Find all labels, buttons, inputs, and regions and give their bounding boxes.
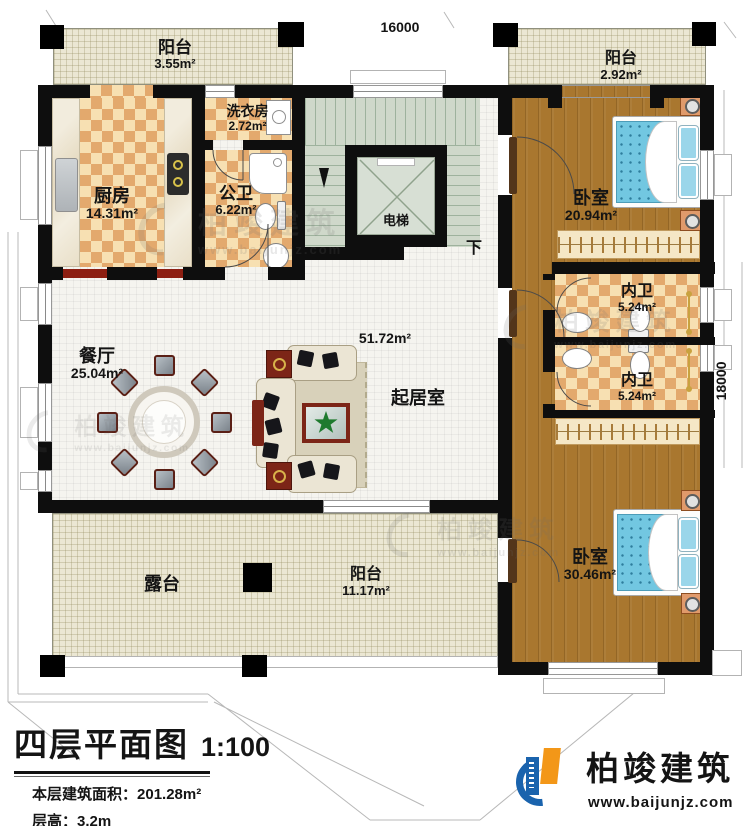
wall xyxy=(498,338,512,538)
window xyxy=(353,85,443,98)
dimension-text: 18000 xyxy=(713,361,729,400)
column xyxy=(40,655,65,677)
floor-area-value: 201.28m² xyxy=(137,786,201,803)
room-label-bedroom-top: 卧室 20.94m² xyxy=(543,188,639,224)
room-area: 14.31m² xyxy=(62,206,162,222)
room-name: 洗衣房 xyxy=(205,104,290,120)
window xyxy=(700,150,714,200)
room-label-kitchen: 厨房 14.31m² xyxy=(62,186,162,222)
room-name: 阳台 xyxy=(320,566,412,584)
room-area: 2.92m² xyxy=(571,68,671,83)
room-name: 露台 xyxy=(144,574,180,594)
title-underline xyxy=(14,771,210,774)
brand-building-windows xyxy=(529,762,534,788)
title-underline-thin xyxy=(14,776,210,777)
wall xyxy=(38,500,323,513)
column xyxy=(243,563,272,592)
wall xyxy=(552,262,715,274)
dimension-width: 16000 xyxy=(370,19,430,37)
stair-down-label: 下 xyxy=(462,240,486,258)
wall xyxy=(183,267,225,280)
window-sill xyxy=(350,70,446,84)
room-label-balcony-bottom: 阳台 11.17m² xyxy=(320,566,412,598)
window-sill xyxy=(20,287,38,321)
wall xyxy=(498,195,512,288)
dimension-height: 18000 xyxy=(713,355,731,407)
wall xyxy=(658,662,712,675)
room-label-ensuite-bottom: 内卫 5.24m² xyxy=(592,372,682,403)
room-area: 2.72m² xyxy=(205,120,290,133)
door-threshold xyxy=(63,269,107,278)
wall xyxy=(205,140,213,150)
room-area: 3.55m² xyxy=(125,57,225,72)
window xyxy=(700,343,714,372)
wall xyxy=(38,267,63,280)
window xyxy=(38,470,52,492)
wall xyxy=(490,85,552,98)
door-leaf xyxy=(509,137,517,194)
window xyxy=(548,662,658,675)
wall xyxy=(300,85,353,98)
brand-name: 柏竣建筑 xyxy=(586,742,734,790)
room-name: 公卫 xyxy=(192,184,280,203)
room-name: 起居室 xyxy=(391,388,445,408)
wall xyxy=(38,442,52,470)
wall xyxy=(548,85,562,108)
wall xyxy=(543,274,555,280)
room-label-laundry: 洗衣房 2.72m² xyxy=(205,104,290,133)
brand-mark-icon xyxy=(516,748,578,812)
room-name: 卧室 xyxy=(543,188,639,208)
room-label-balcony-tl: 阳台 3.55m² xyxy=(125,38,225,72)
floor-area-label: 本层建筑面积： xyxy=(32,786,137,803)
room-area: 51.72m² xyxy=(359,330,411,346)
floor-area-line: 本层建筑面积：201.28m² xyxy=(32,783,314,804)
wall xyxy=(650,85,664,108)
wall xyxy=(543,410,715,418)
room-label-terrace: 露台 xyxy=(130,574,194,595)
room-area: 25.04m² xyxy=(48,366,146,382)
wall xyxy=(543,310,555,372)
window-sill xyxy=(20,472,38,490)
window-sill xyxy=(20,387,38,438)
room-name: 卧室 xyxy=(542,547,638,567)
wall xyxy=(555,337,715,345)
sliding-door xyxy=(323,500,430,513)
room-label-elevator: 电梯 xyxy=(357,214,435,229)
window xyxy=(700,287,714,323)
room-area: 20.94m² xyxy=(543,208,639,224)
room-label-balcony-tr: 阳台 2.92m² xyxy=(571,50,671,82)
room-name: 阳台 xyxy=(125,38,225,57)
room-area: 5.24m² xyxy=(592,390,682,403)
room-name: 阳台 xyxy=(571,50,671,68)
door-leaf xyxy=(508,539,517,583)
room-label-living: 起居室 xyxy=(375,388,461,409)
window-sill xyxy=(712,650,742,676)
room-name: 餐厅 xyxy=(48,346,146,366)
wall xyxy=(107,267,157,280)
window-sill xyxy=(543,678,665,694)
floor-height-label: 层高： xyxy=(32,813,77,826)
elevator-door xyxy=(377,158,415,166)
wall xyxy=(38,85,52,146)
room-area: 6.22m² xyxy=(192,203,280,218)
column xyxy=(692,22,716,46)
room-area: 11.17m² xyxy=(320,584,412,599)
window-sill xyxy=(714,154,732,196)
room-name: 电梯 xyxy=(357,214,435,229)
window xyxy=(38,383,52,442)
window xyxy=(38,283,52,325)
room-label-public-bath: 公卫 6.22m² xyxy=(192,184,280,218)
room-label-dining: 餐厅 25.04m² xyxy=(48,346,146,382)
room-name: 内卫 xyxy=(592,283,682,301)
wall xyxy=(153,85,205,98)
room-area-living: 51.72m² xyxy=(345,330,425,348)
window xyxy=(38,146,52,225)
door-leaf xyxy=(509,290,517,337)
room-label-ensuite-top: 内卫 5.24m² xyxy=(592,283,682,314)
wall xyxy=(443,85,492,98)
window-sill xyxy=(20,150,38,220)
column xyxy=(278,22,304,47)
stair-down-arrow-icon xyxy=(319,168,329,188)
floor-height-value: 3.2m xyxy=(77,813,111,826)
column xyxy=(242,655,267,677)
brand-url: www.baijunjz.com xyxy=(588,794,734,811)
floor-plan: 柏竣建筑 www.baijunjz.com 柏竣建筑 www.baijunjz.… xyxy=(0,0,750,826)
column xyxy=(40,25,64,49)
window xyxy=(205,85,235,98)
window-sill xyxy=(714,289,732,321)
door-threshold xyxy=(157,269,183,278)
wall xyxy=(700,85,714,150)
wall xyxy=(292,247,404,260)
down-text: 下 xyxy=(466,240,482,257)
title-block: 四层平面图1:100 本层建筑面积：201.28m² 层高：3.2m xyxy=(14,718,314,826)
room-label-bedroom-bottom: 卧室 30.46m² xyxy=(542,547,638,583)
room-name: 厨房 xyxy=(62,186,162,206)
brand-text: 柏竣建筑 www.baijunjz.com xyxy=(586,742,734,811)
floor-height-line: 层高：3.2m xyxy=(32,810,314,826)
plan-title: 四层平面图 xyxy=(14,726,189,763)
plan-title-row: 四层平面图1:100 xyxy=(14,718,314,766)
wall xyxy=(498,98,512,135)
wall xyxy=(498,582,512,675)
room-area: 5.24m² xyxy=(592,301,682,314)
column xyxy=(493,23,518,47)
room-area: 30.46m² xyxy=(542,567,638,583)
room-name: 内卫 xyxy=(592,372,682,390)
dimension-text: 16000 xyxy=(381,19,420,35)
plan-scale: 1:100 xyxy=(201,732,270,762)
